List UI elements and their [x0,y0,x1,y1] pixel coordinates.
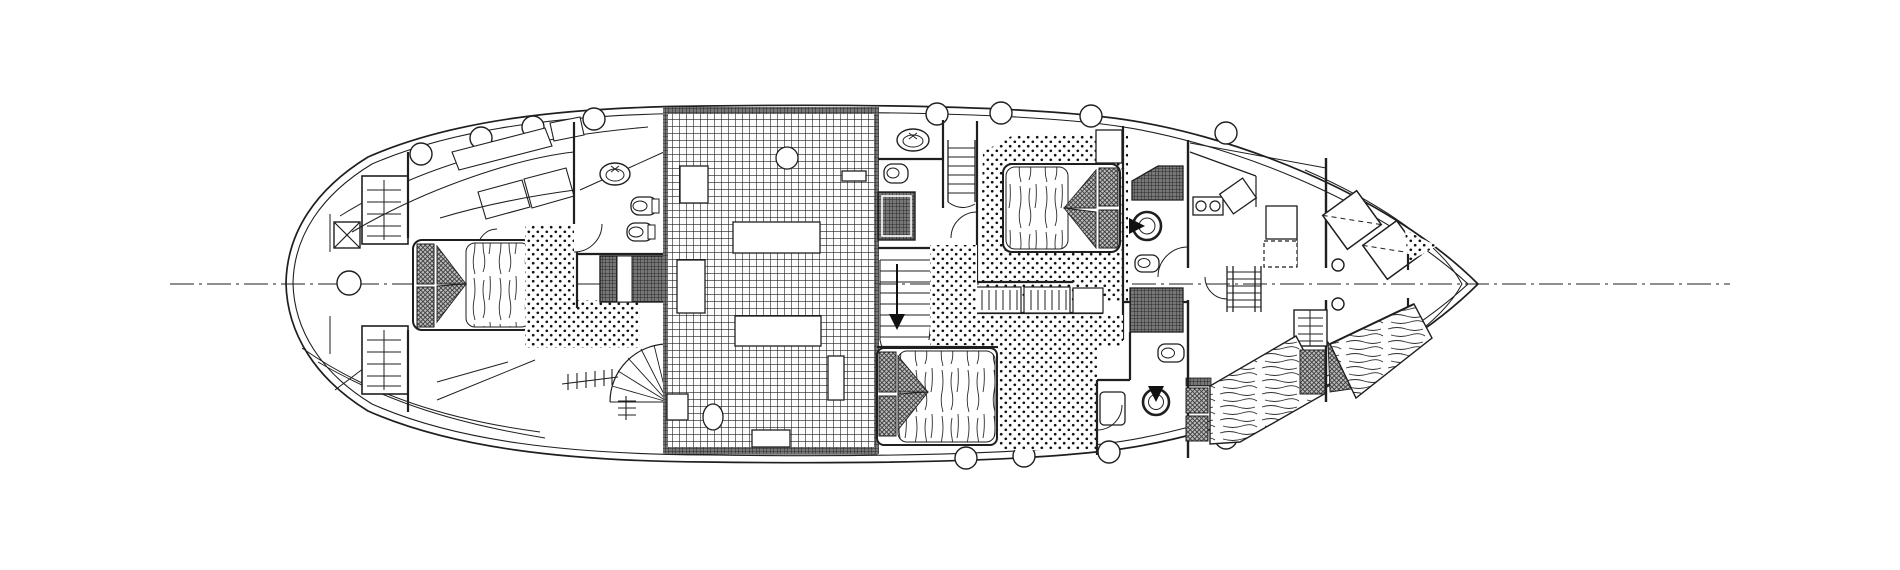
mast-circle [776,147,798,169]
salon-border [666,447,877,454]
porthole-icon [1098,441,1120,463]
salon [663,107,879,454]
porthole-icon [583,108,605,130]
salon-table [735,316,821,346]
washbasin-icon [600,163,630,185]
pillow [1186,416,1208,441]
mooring-circle [1332,298,1344,310]
chart-table [1266,206,1297,239]
guest-bed-upper [1003,164,1120,252]
porthole-icon [990,102,1012,124]
toilet-icon [1158,344,1184,362]
salon-furniture-block [677,260,705,313]
stove-burners [1193,197,1223,215]
cross-marked-locker [334,222,360,248]
washbasin-icon [897,129,929,151]
salon-furniture-block [828,356,844,400]
pillow [1300,350,1325,394]
carpet-floor [930,245,977,345]
pillow [879,352,896,392]
round-washbasin [1143,389,1169,415]
salon-stool [703,404,723,430]
toilet-icon [631,197,659,215]
shower-floor [600,256,666,302]
porthole-icon [955,447,977,469]
windlass-circle [337,271,361,295]
carpet-floor [998,347,1097,450]
locker-strip [1186,378,1211,386]
guest-bed-lower [877,348,997,445]
overhead-cabinet [1096,130,1122,163]
toilet-icon [1135,255,1159,272]
toilet-icon [884,164,908,183]
salon-furniture-block [667,394,688,420]
bidet-icon [627,223,655,241]
carpet-floor [977,315,1123,346]
pillow [1186,388,1208,413]
pillow [1099,210,1118,248]
salon-furniture-block [680,166,708,203]
shelf-locker-bottom [362,326,408,394]
salon-border [666,107,877,114]
porthole-icon [926,103,948,125]
round-washbasin [1133,212,1161,240]
screenshot-canvas [0,0,1900,570]
shower-floor [878,192,915,240]
porthole-icon [410,143,432,165]
salon-table [733,222,820,253]
shelf-locker-top [362,176,408,244]
owner-bed [413,240,532,330]
pillow [879,396,896,436]
mooring-circle [1332,259,1344,271]
bedside-cabinet [1100,392,1125,425]
appliance-dashed [1264,241,1297,267]
deck-plan-drawing [0,0,1900,570]
salon-furniture-block [752,430,790,447]
porthole-icon [1080,105,1102,127]
side-shelf [842,171,866,181]
porthole-icon [1215,122,1237,144]
wardrobe [1130,288,1183,332]
settee-slats [975,287,1103,313]
pillow [417,287,434,327]
pillow [1099,168,1118,206]
pillow [417,244,434,284]
